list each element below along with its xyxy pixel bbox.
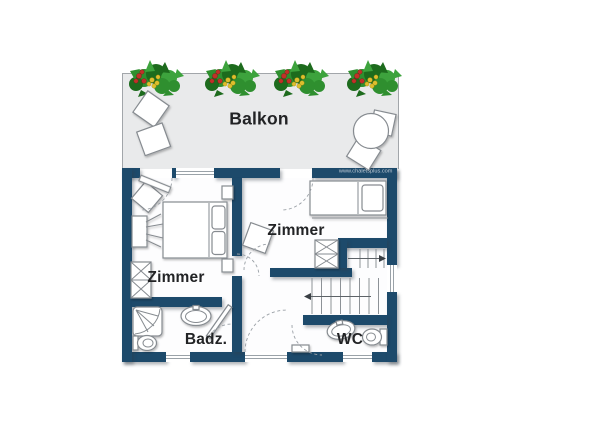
- interior-floor: [132, 178, 387, 352]
- floor-plan: Balkon Zimmer Zimmer Badz. WC www.chalet…: [0, 0, 600, 425]
- bedroom-middle-label: Zimmer: [267, 222, 324, 240]
- wall: [387, 292, 397, 362]
- balcony-label: Balkon: [229, 109, 289, 130]
- wall: [287, 352, 343, 362]
- window: [176, 168, 214, 178]
- wall: [132, 297, 222, 307]
- wall: [214, 168, 280, 178]
- wall: [190, 352, 245, 362]
- bedroom-left-label: Zimmer: [147, 269, 204, 287]
- wall: [122, 168, 132, 362]
- window: [387, 265, 397, 292]
- window: [166, 352, 190, 362]
- watermark-text: www.chaletsplus.com: [336, 168, 395, 174]
- bathroom-label: Badz.: [185, 331, 227, 349]
- wall: [387, 168, 397, 265]
- window: [343, 352, 372, 362]
- window: [245, 352, 287, 362]
- wc-label: WC: [337, 331, 363, 349]
- wall: [338, 240, 347, 268]
- wall: [232, 276, 242, 352]
- wall: [270, 268, 352, 277]
- wall: [232, 178, 242, 256]
- wall: [303, 315, 387, 325]
